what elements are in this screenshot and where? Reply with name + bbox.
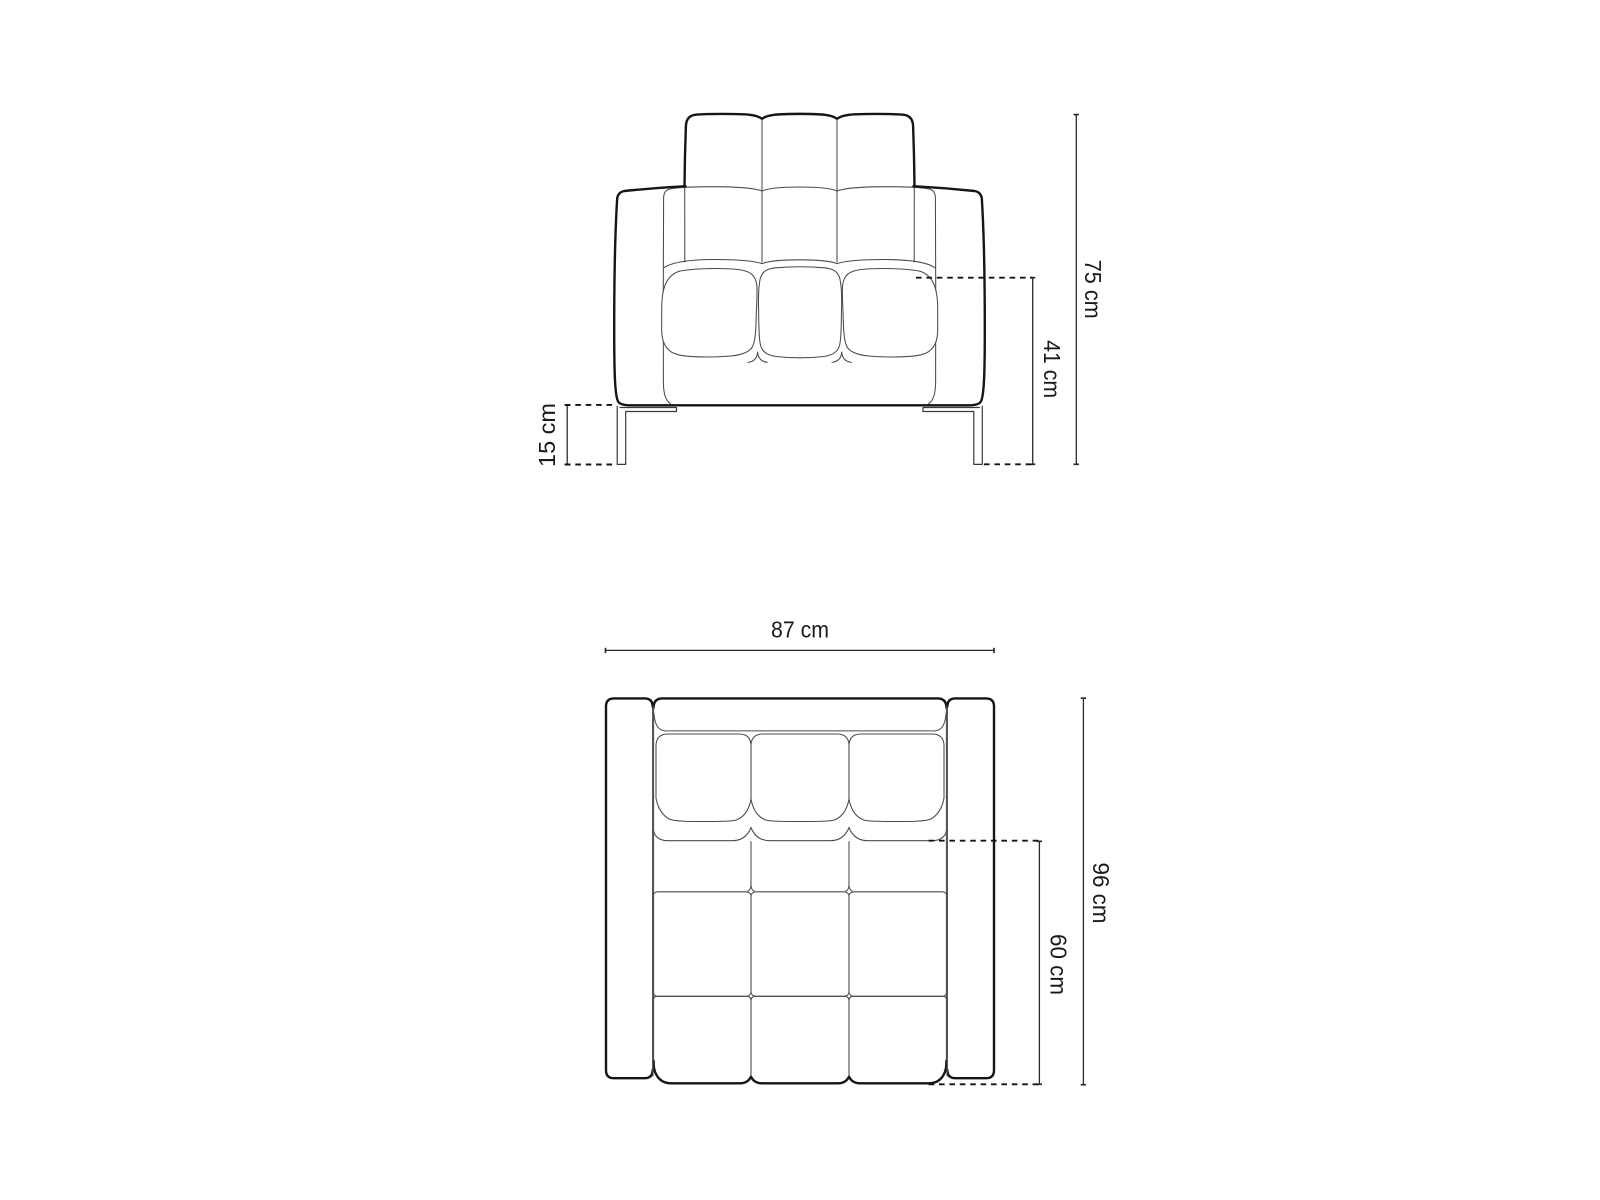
svg-text:15 cm: 15 cm — [534, 403, 560, 467]
svg-text:41 cm: 41 cm — [1039, 340, 1065, 398]
svg-text:60 cm: 60 cm — [1046, 934, 1072, 995]
svg-text:75 cm: 75 cm — [1080, 260, 1106, 319]
svg-text:96 cm: 96 cm — [1088, 863, 1114, 924]
svg-text:87 cm: 87 cm — [771, 616, 829, 642]
